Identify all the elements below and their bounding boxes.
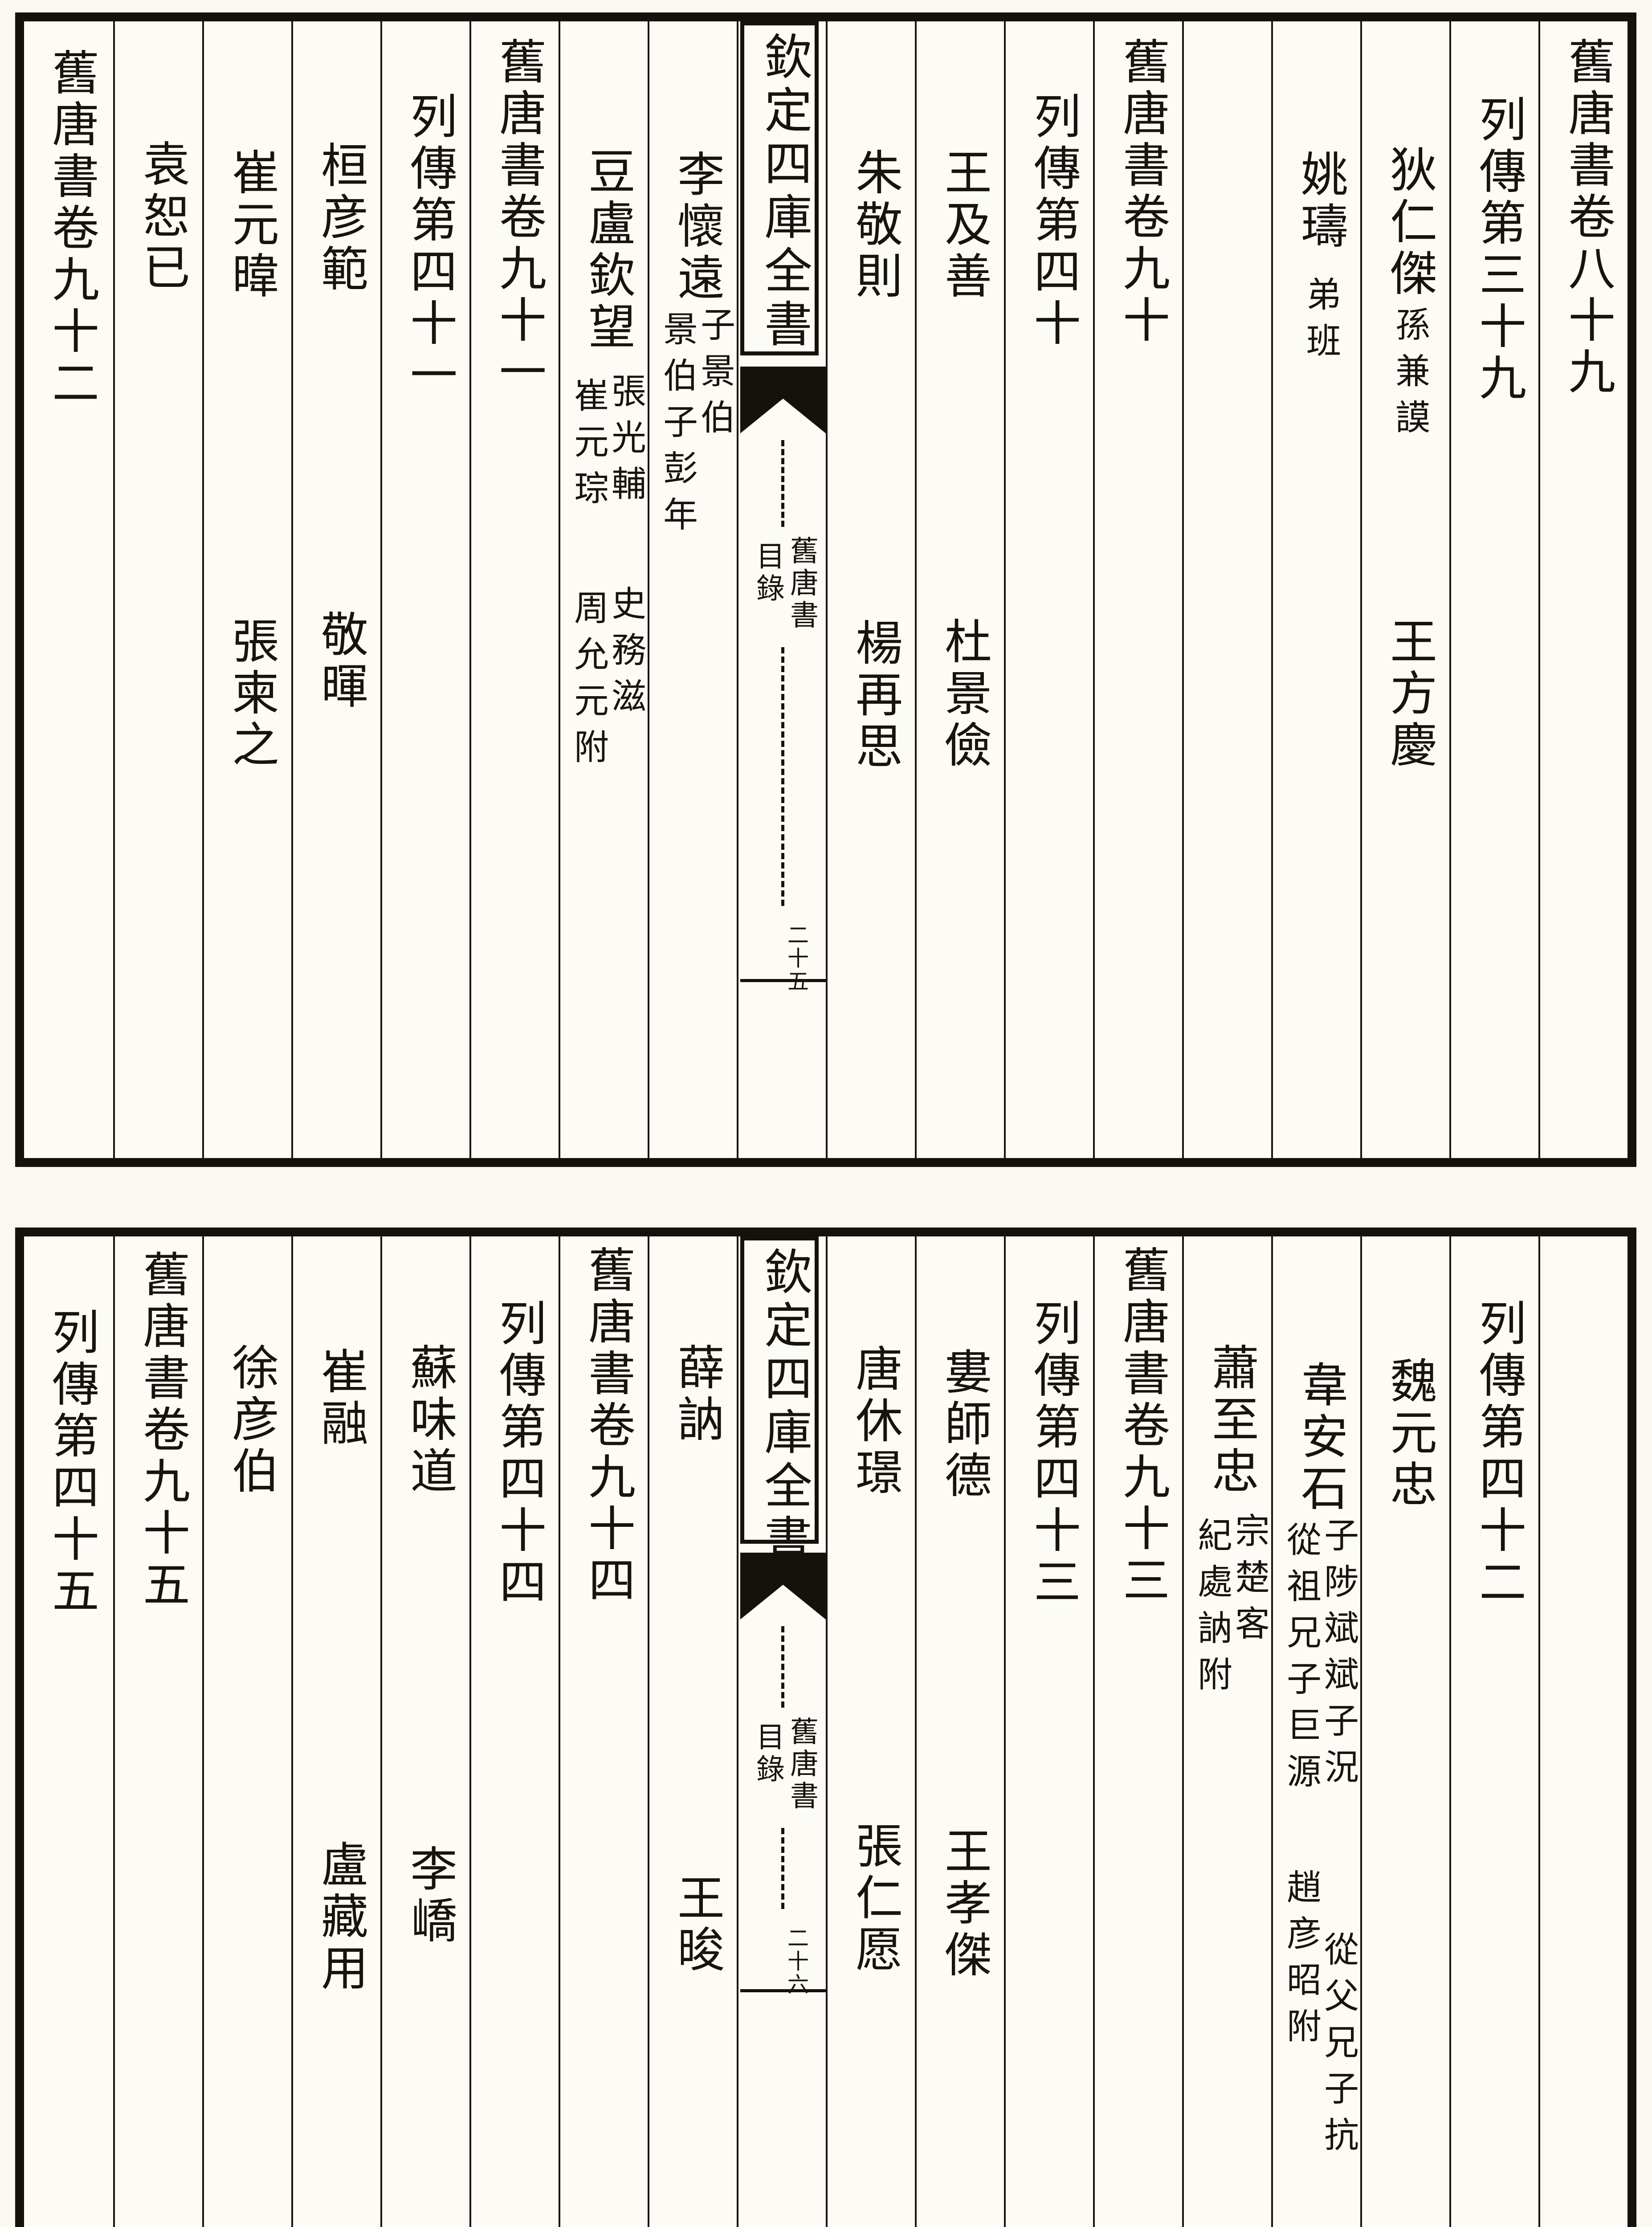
text-column: 徐彦伯 [202,1236,291,2227]
fold-line [781,1828,784,1909]
text-column: 舊唐書卷九十 [1093,21,1182,1158]
text-column: 舊唐書卷九十五 [113,1236,202,2227]
annotation-text: 孫兼謨 [1390,306,1427,445]
entry-text: 舊唐書卷九十三 [1114,1245,1165,1607]
annotation-text-left: 崔元琮 [568,377,606,516]
text-column: 蘇味道李嶠 [380,1236,469,2227]
entry-text: 王孝傑 [935,1827,987,1982]
annotation-text-right: 從父兄子抗 [1318,1931,1356,2163]
entry-text: 張柬之 [223,616,274,771]
siku-edition-box: 欽定四庫全書 [740,1236,819,1544]
text-column: 蕭至忠宗楚客紀處訥附 [1182,1236,1271,2227]
text-column: 列傳第四十五 [24,1236,113,2227]
text-column: 列傳第四十一 [380,21,469,1158]
annotation-text-left: 周允元附 [568,590,606,775]
entry-text: 列傳第四十一 [401,92,453,402]
entry-text: 列傳第四十二 [1470,1299,1521,1609]
entry-text: 敬暉 [312,610,363,713]
annotation-text: 弟班 [1301,276,1338,369]
entry-text: 桓彦範 [312,141,363,296]
entry-text: 李嶠 [401,1844,453,1948]
text-block-top: 舊唐書卷八十九列傳第三十九狄仁傑孫兼謨王方慶姚璹弟班舊唐書卷九十列傳第四十王及善… [15,12,1636,1167]
entry-text: 蘇味道 [401,1343,453,1498]
entry-text: 婁師德 [935,1347,987,1502]
entry-text: 袁恕已 [134,139,185,294]
text-column: 崔融盧藏用 [291,1236,380,2227]
entry-text: 列傳第三十九 [1470,95,1521,405]
siku-edition-label: 欽定四庫全書 [756,1247,808,1567]
text-column: 魏元忠 [1360,1236,1449,2227]
fold-line [781,647,784,906]
text-column [1182,21,1271,1158]
entry-text: 朱敬則 [846,148,898,303]
annotation-text-left: 趙彦昭附 [1281,1869,1318,2054]
text-column: 列傳第四十三 [1004,1236,1093,2227]
entry-text: 張仁愿 [846,1821,898,1976]
fold-line [781,440,784,527]
text-column: 李懷遠子景伯景伯子彭年 [648,21,737,1158]
entry-text: 魏元忠 [1381,1356,1432,1511]
scanned-book-page: { "page": { "folio": "268-15", "ink": "#… [0,0,1652,2227]
text-column: 舊唐書卷八十九 [1538,21,1628,1158]
text-column [1538,1236,1628,2227]
entry-text: 舊唐書卷九十五 [134,1250,185,1611]
text-column: 薛訥王晙 [648,1236,737,2227]
text-column: 崔元暐張柬之 [202,21,291,1158]
annotation-text-left: 從祖兄子巨源 [1281,1521,1318,1799]
text-column: 婁師德王孝傑 [915,1236,1004,2227]
entry-text: 舊唐書卷九十二 [43,48,94,410]
book-title-label: 舊唐書 [785,536,816,632]
entry-text: 韋安石 [1292,1360,1343,1515]
text-column: 姚璹弟班 [1271,21,1360,1158]
fold-line [781,1626,784,1708]
text-column: 袁恕已 [113,21,202,1158]
text-column: 狄仁傑孫兼謨王方慶 [1360,21,1449,1158]
entry-text: 列傳第四十三 [1024,1299,1076,1609]
toc-section-label: 目錄 [751,1722,782,1786]
entry-text: 列傳第四十 [1024,92,1076,350]
annotation-text-right: 子陟斌斌子況 [1318,1517,1356,1795]
text-column: 韋安石子陟斌斌子況從祖兄子巨源趙彦昭附從父兄子抗 [1271,1236,1360,2227]
leaf-number: 二十五 [782,924,806,993]
annotation-text-right: 子景伯 [695,306,732,445]
text-column: 豆盧欽望張光輔崔元琮史務滋周允元附 [559,21,648,1158]
entry-text: 薛訥 [668,1343,720,1446]
fishtail-mark-icon [740,1553,826,1619]
entry-text: 杜景儉 [935,617,987,772]
annotation-text-left: 紀處訥附 [1192,1517,1229,1702]
column-grid: 列傳第四十二魏元忠韋安石子陟斌斌子況從祖兄子巨源趙彦昭附從父兄子抗蕭至忠宗楚客紀… [24,1236,1628,2227]
text-column: 列傳第四十四 [469,1236,559,2227]
annotation-text-right: 張光輔 [606,373,643,512]
leaf-number: 二十六 [782,1927,806,1996]
text-column: 列傳第四十 [1004,21,1093,1158]
entry-text: 舊唐書卷九十 [1114,37,1165,347]
book-title-label: 舊唐書 [785,1717,816,1813]
text-column: 舊唐書卷九十二 [24,21,113,1158]
entry-text: 徐彦伯 [223,1343,274,1498]
text-column: 桓彦範敬暉 [291,21,380,1158]
entry-text: 豆盧欽望 [579,147,631,354]
entry-text: 王方慶 [1381,617,1432,772]
siku-edition-label: 欽定四庫全書 [756,32,808,352]
entry-text: 王晙 [668,1873,720,1977]
entry-text: 列傳第四十五 [43,1308,94,1618]
text-column: 舊唐書卷九十三 [1093,1236,1182,2227]
text-column: 唐休璟張仁愿 [826,1236,915,2227]
text-column: 列傳第三十九 [1449,21,1538,1158]
entry-text: 王及善 [935,148,987,303]
fishtail-mark-icon [740,367,826,433]
annotation-text-right: 史務滋 [606,585,643,724]
entry-text: 列傳第四十四 [490,1299,542,1609]
center-fold-column: 欽定四庫全書舊唐書目錄二十六 [737,1236,826,2227]
entry-text: 狄仁傑 [1381,145,1432,300]
center-box-rule [740,979,826,982]
center-fold-column: 欽定四庫全書舊唐書目錄二十五 [737,21,826,1158]
text-column: 列傳第四十二 [1449,1236,1538,2227]
entry-text: 崔融 [312,1347,363,1450]
text-block-bottom: 列傳第四十二魏元忠韋安石子陟斌斌子況從祖兄子巨源趙彦昭附從父兄子抗蕭至忠宗楚客紀… [15,1228,1636,2227]
text-column: 朱敬則楊再思 [826,21,915,1158]
annotation-text-left: 景伯子彭年 [657,311,695,542]
entry-text: 李懷遠 [668,150,720,305]
entry-text: 唐休璟 [846,1344,898,1499]
entry-text: 舊唐書卷九十四 [579,1245,631,1607]
text-column: 王及善杜景儉 [915,21,1004,1158]
entry-text: 楊再思 [846,618,898,773]
text-column: 舊唐書卷九十一 [469,21,559,1158]
entry-text: 姚璹 [1292,150,1343,253]
siku-edition-box: 欽定四庫全書 [740,21,819,355]
text-column: 舊唐書卷九十四 [559,1236,648,2227]
entry-text: 舊唐書卷八十九 [1559,37,1611,399]
entry-text: 盧藏用 [312,1840,363,1995]
annotation-text-right: 宗楚客 [1229,1513,1267,1652]
center-box-rule [740,1989,826,1992]
entry-text: 蕭至忠 [1203,1343,1254,1498]
column-grid: 舊唐書卷八十九列傳第三十九狄仁傑孫兼謨王方慶姚璹弟班舊唐書卷九十列傳第四十王及善… [24,21,1628,1158]
toc-section-label: 目錄 [751,541,782,605]
entry-text: 舊唐書卷九十一 [490,37,542,399]
entry-text: 崔元暐 [223,148,274,303]
